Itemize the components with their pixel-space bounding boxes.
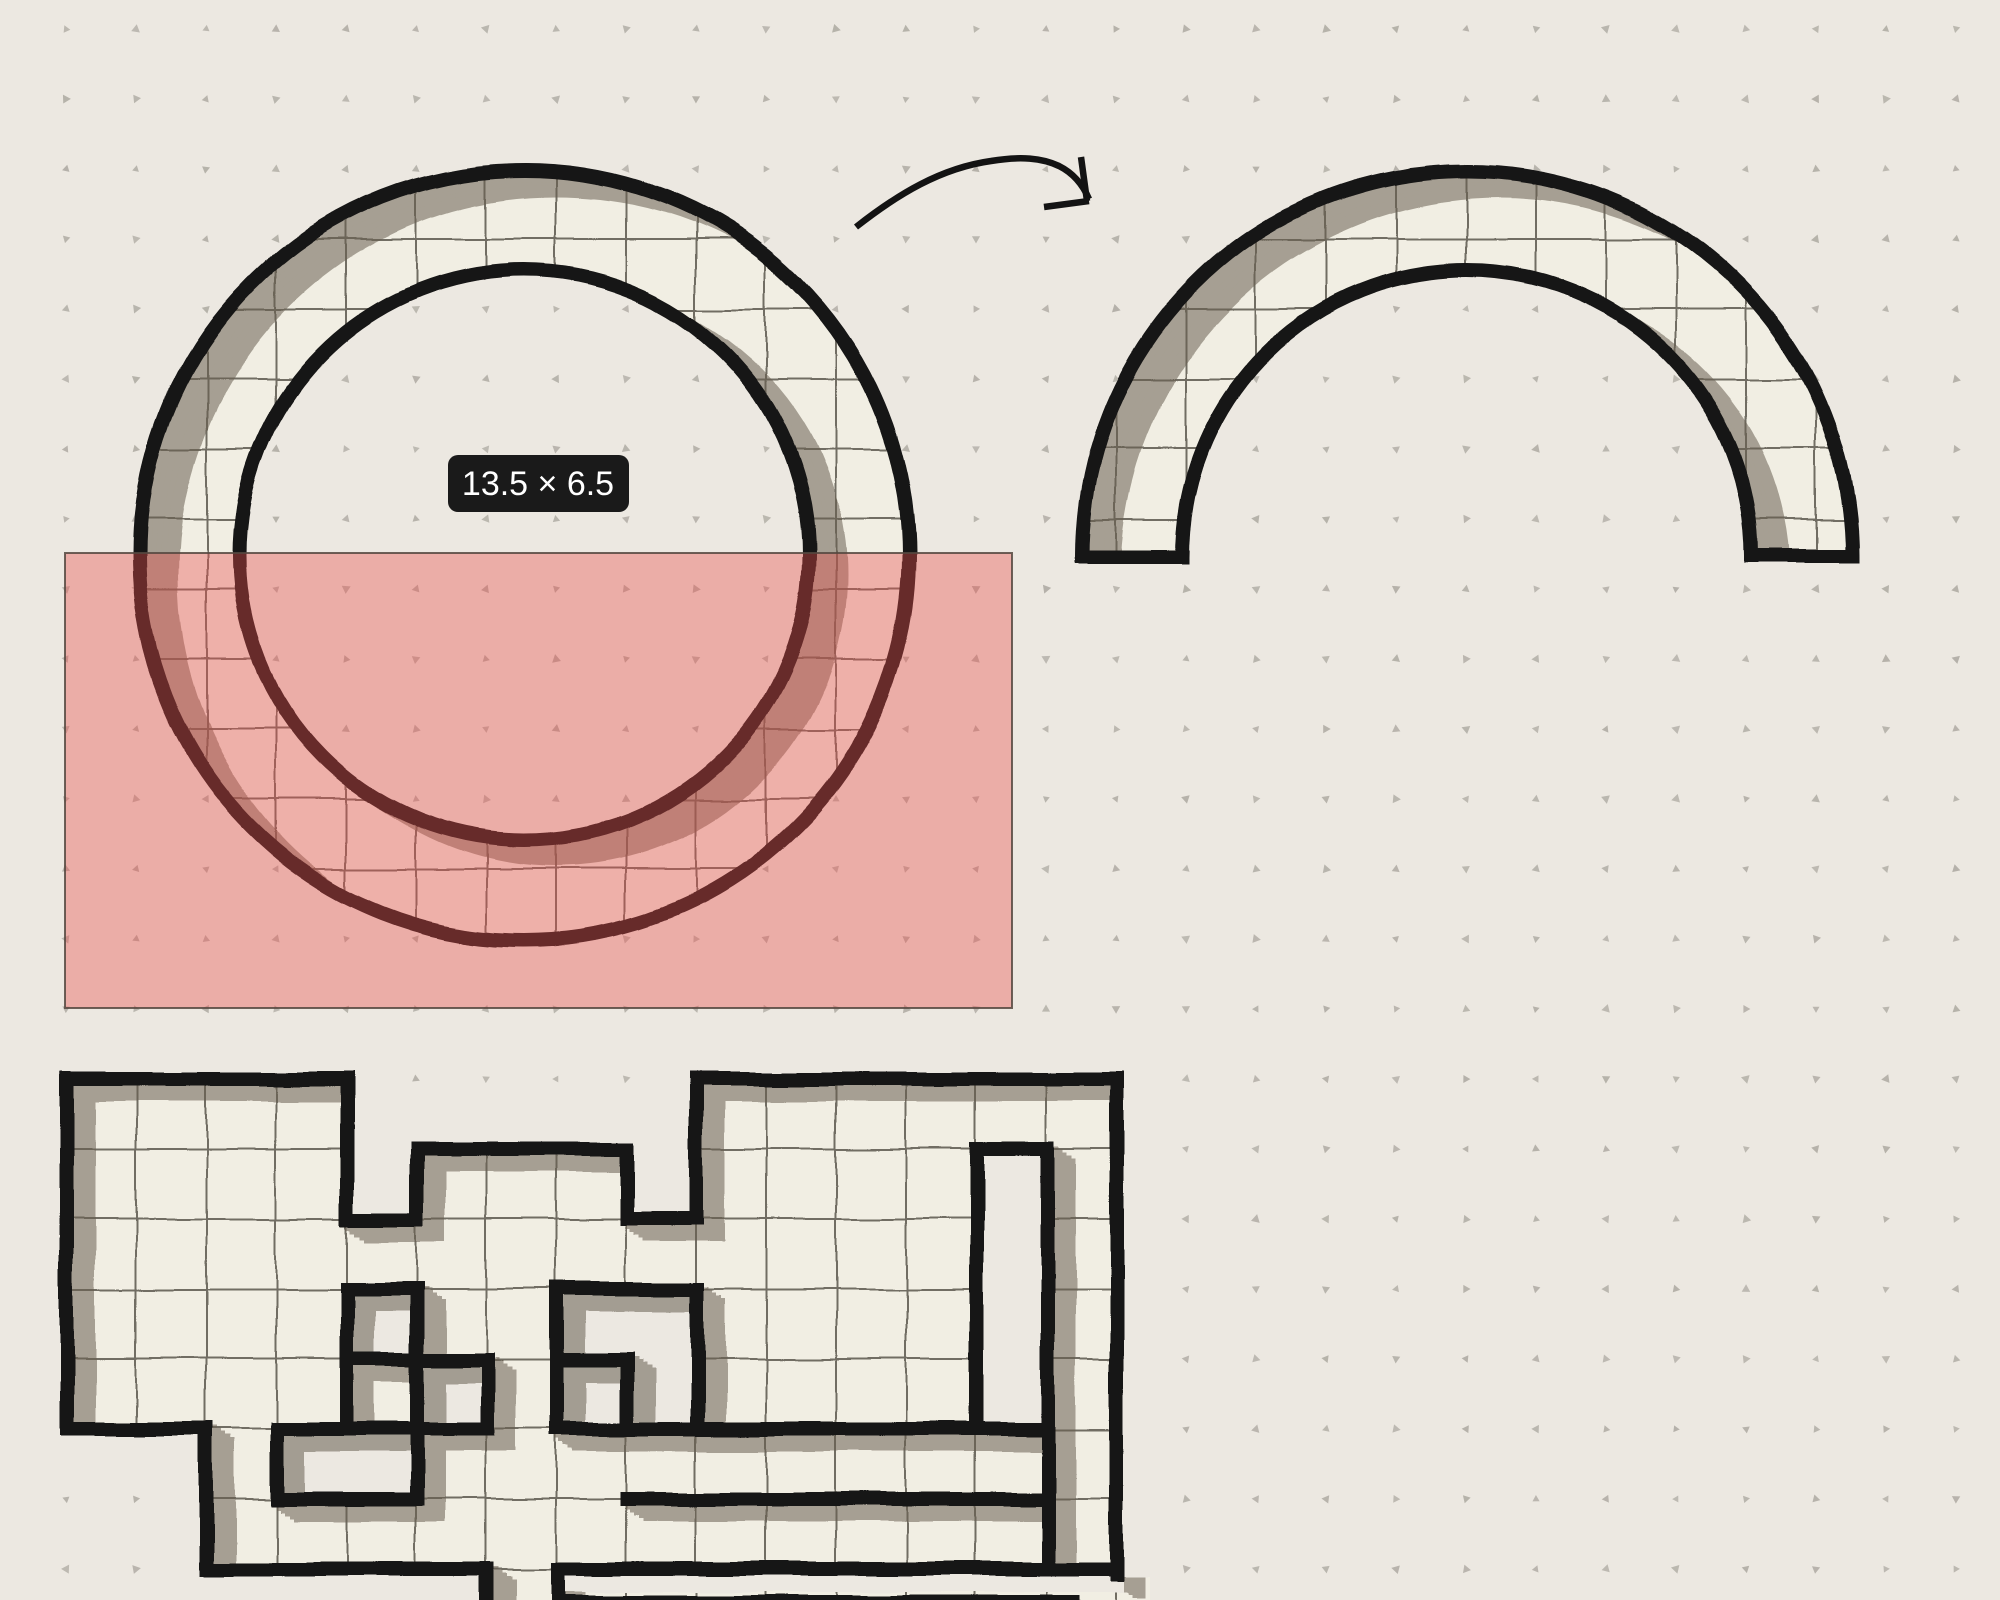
svg-text:13.5 × 6.5: 13.5 × 6.5 xyxy=(462,465,614,503)
